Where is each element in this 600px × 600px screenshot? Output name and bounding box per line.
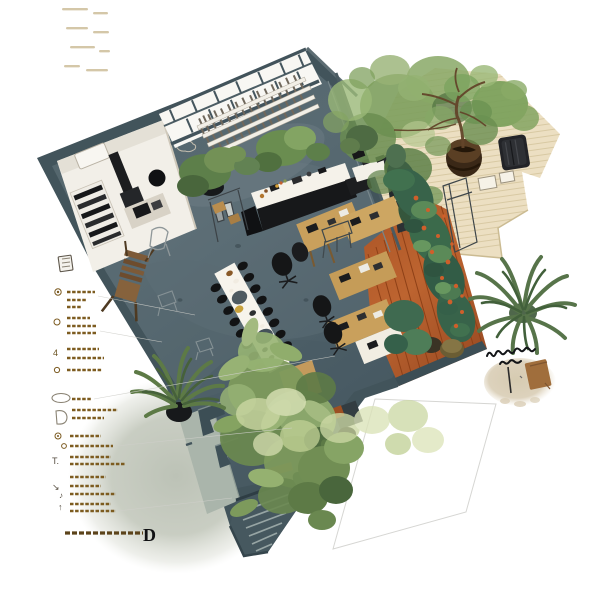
svg-text:↑: ↑	[58, 502, 63, 512]
svg-text:D: D	[143, 525, 156, 545]
svg-text:4: 4	[53, 348, 58, 358]
svg-text:♪: ♪	[59, 491, 63, 500]
svg-text:T.: T.	[52, 456, 59, 466]
